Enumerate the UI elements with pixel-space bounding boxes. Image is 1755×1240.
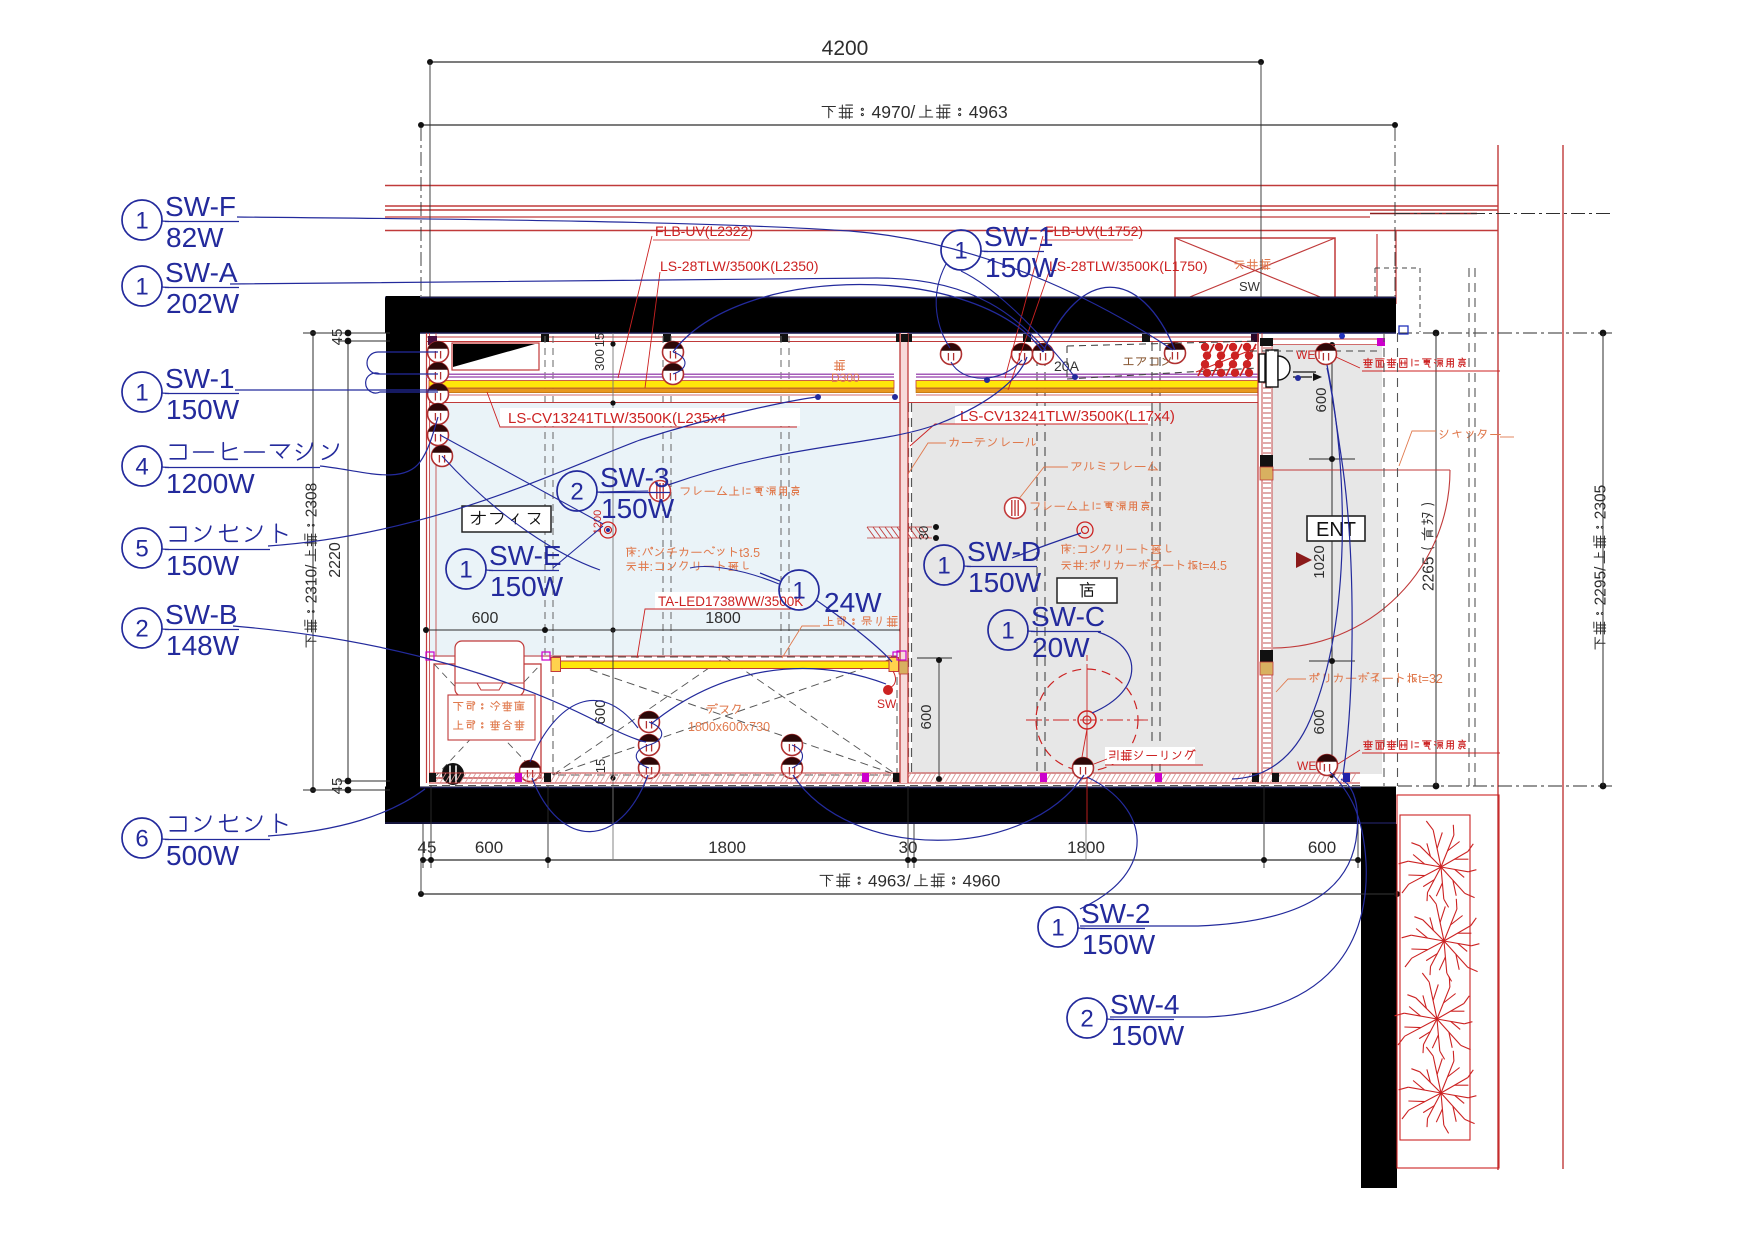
svg-text:1800: 1800 [705, 610, 741, 627]
svg-text:150W: 150W [1111, 1020, 1185, 1051]
svg-text:WET: WET [1296, 348, 1323, 362]
svg-text:SW-1: SW-1 [165, 363, 235, 394]
svg-text:150W: 150W [601, 493, 675, 524]
svg-text:4963: 4963 [969, 102, 1008, 122]
svg-text:1: 1 [459, 557, 472, 584]
svg-text:SW: SW [877, 697, 897, 711]
svg-text:LS-28TLW/3500K(L2350): LS-28TLW/3500K(L2350) [660, 258, 819, 274]
svg-text::: : [1072, 543, 1075, 557]
svg-text:600: 600 [1311, 709, 1328, 734]
svg-text:1: 1 [937, 553, 950, 580]
svg-text:SW-4: SW-4 [1110, 989, 1180, 1020]
svg-text:2295/: 2295/ [1592, 566, 1609, 605]
svg-text:1800: 1800 [708, 838, 746, 857]
svg-text:FLB-UV(L1752): FLB-UV(L1752) [1045, 223, 1143, 239]
svg-text::: : [637, 546, 640, 560]
svg-text:SW-F: SW-F [165, 191, 236, 222]
svg-text:2220: 2220 [327, 542, 344, 578]
svg-text:SW-E: SW-E [489, 540, 562, 571]
svg-text:150W: 150W [166, 550, 240, 581]
svg-text:2265: 2265 [1420, 557, 1437, 591]
svg-text::: : [1085, 559, 1088, 573]
svg-text:WET: WET [1297, 759, 1324, 773]
svg-text:600: 600 [472, 610, 499, 627]
svg-text:TA-LED1738WW/3500K: TA-LED1738WW/3500K [658, 594, 803, 609]
svg-text:4: 4 [135, 454, 148, 481]
svg-text:202W: 202W [166, 288, 240, 319]
svg-text:t=32: t=32 [1418, 672, 1443, 686]
svg-text:LS-28TLW/3500K(L1750): LS-28TLW/3500K(L1750) [1049, 258, 1208, 274]
svg-text:1800x600x730: 1800x600x730 [688, 720, 770, 734]
svg-text:4963/: 4963/ [868, 872, 911, 891]
svg-text:150W: 150W [985, 252, 1059, 283]
svg-text:1: 1 [1051, 915, 1064, 942]
svg-text:500W: 500W [166, 840, 240, 871]
svg-text:82W: 82W [166, 222, 224, 253]
svg-text:1: 1 [135, 380, 148, 407]
svg-text:SW-A: SW-A [165, 257, 238, 288]
svg-text:4960: 4960 [963, 872, 1001, 891]
svg-text:30: 30 [899, 838, 918, 857]
svg-text:150W: 150W [968, 567, 1042, 598]
svg-text:5: 5 [135, 536, 148, 563]
svg-text:600: 600 [1308, 838, 1336, 857]
svg-text:SW-1: SW-1 [984, 221, 1054, 252]
svg-text:1200W: 1200W [166, 468, 255, 499]
svg-text:600: 600 [1313, 387, 1330, 412]
svg-text:300: 300 [592, 349, 607, 371]
svg-text:2310/: 2310/ [303, 564, 320, 603]
svg-text:2: 2 [1080, 1006, 1093, 1033]
svg-text:4200: 4200 [822, 37, 869, 60]
svg-text:150W: 150W [166, 394, 240, 425]
svg-text:45: 45 [329, 778, 346, 795]
svg-text:24W: 24W [824, 587, 882, 618]
svg-text:2: 2 [570, 479, 583, 506]
svg-text:15: 15 [592, 333, 607, 347]
svg-text:LS-CV13241TLW/3500K(L17x4): LS-CV13241TLW/3500K(L17x4) [960, 408, 1175, 425]
svg-text:SW-C: SW-C [1031, 601, 1105, 632]
svg-text:15: 15 [593, 759, 608, 773]
svg-text:20W: 20W [1032, 632, 1090, 663]
svg-text::: : [650, 560, 653, 574]
svg-text:2: 2 [135, 616, 148, 643]
svg-text:1: 1 [135, 208, 148, 235]
svg-text:1: 1 [135, 274, 148, 301]
svg-text:2308: 2308 [303, 483, 320, 517]
svg-text:2305: 2305 [1592, 485, 1609, 519]
svg-text:D300: D300 [831, 371, 860, 385]
svg-text:4970/: 4970/ [872, 102, 916, 122]
svg-text:SW: SW [1239, 279, 1261, 294]
svg-text:45: 45 [329, 329, 346, 346]
svg-text:1: 1 [792, 578, 805, 605]
svg-text:600: 600 [475, 838, 503, 857]
svg-text:SW-D: SW-D [967, 536, 1041, 567]
svg-text:t=4.5: t=4.5 [1199, 559, 1227, 573]
svg-text:30: 30 [916, 526, 931, 540]
svg-text:1020: 1020 [1311, 545, 1328, 578]
svg-text:600: 600 [918, 704, 935, 729]
svg-text:6: 6 [135, 826, 148, 853]
svg-text:SW-2: SW-2 [1081, 898, 1151, 929]
svg-text:150W: 150W [1082, 929, 1156, 960]
svg-text:SW-B: SW-B [165, 599, 238, 630]
svg-text:SW-3: SW-3 [600, 462, 670, 493]
svg-text:45: 45 [418, 838, 437, 857]
svg-text:148W: 148W [166, 630, 240, 661]
svg-text:1: 1 [954, 238, 967, 265]
svg-text:1: 1 [1001, 618, 1014, 645]
svg-text:150W: 150W [490, 571, 564, 602]
svg-text:t3.5: t3.5 [739, 546, 760, 560]
